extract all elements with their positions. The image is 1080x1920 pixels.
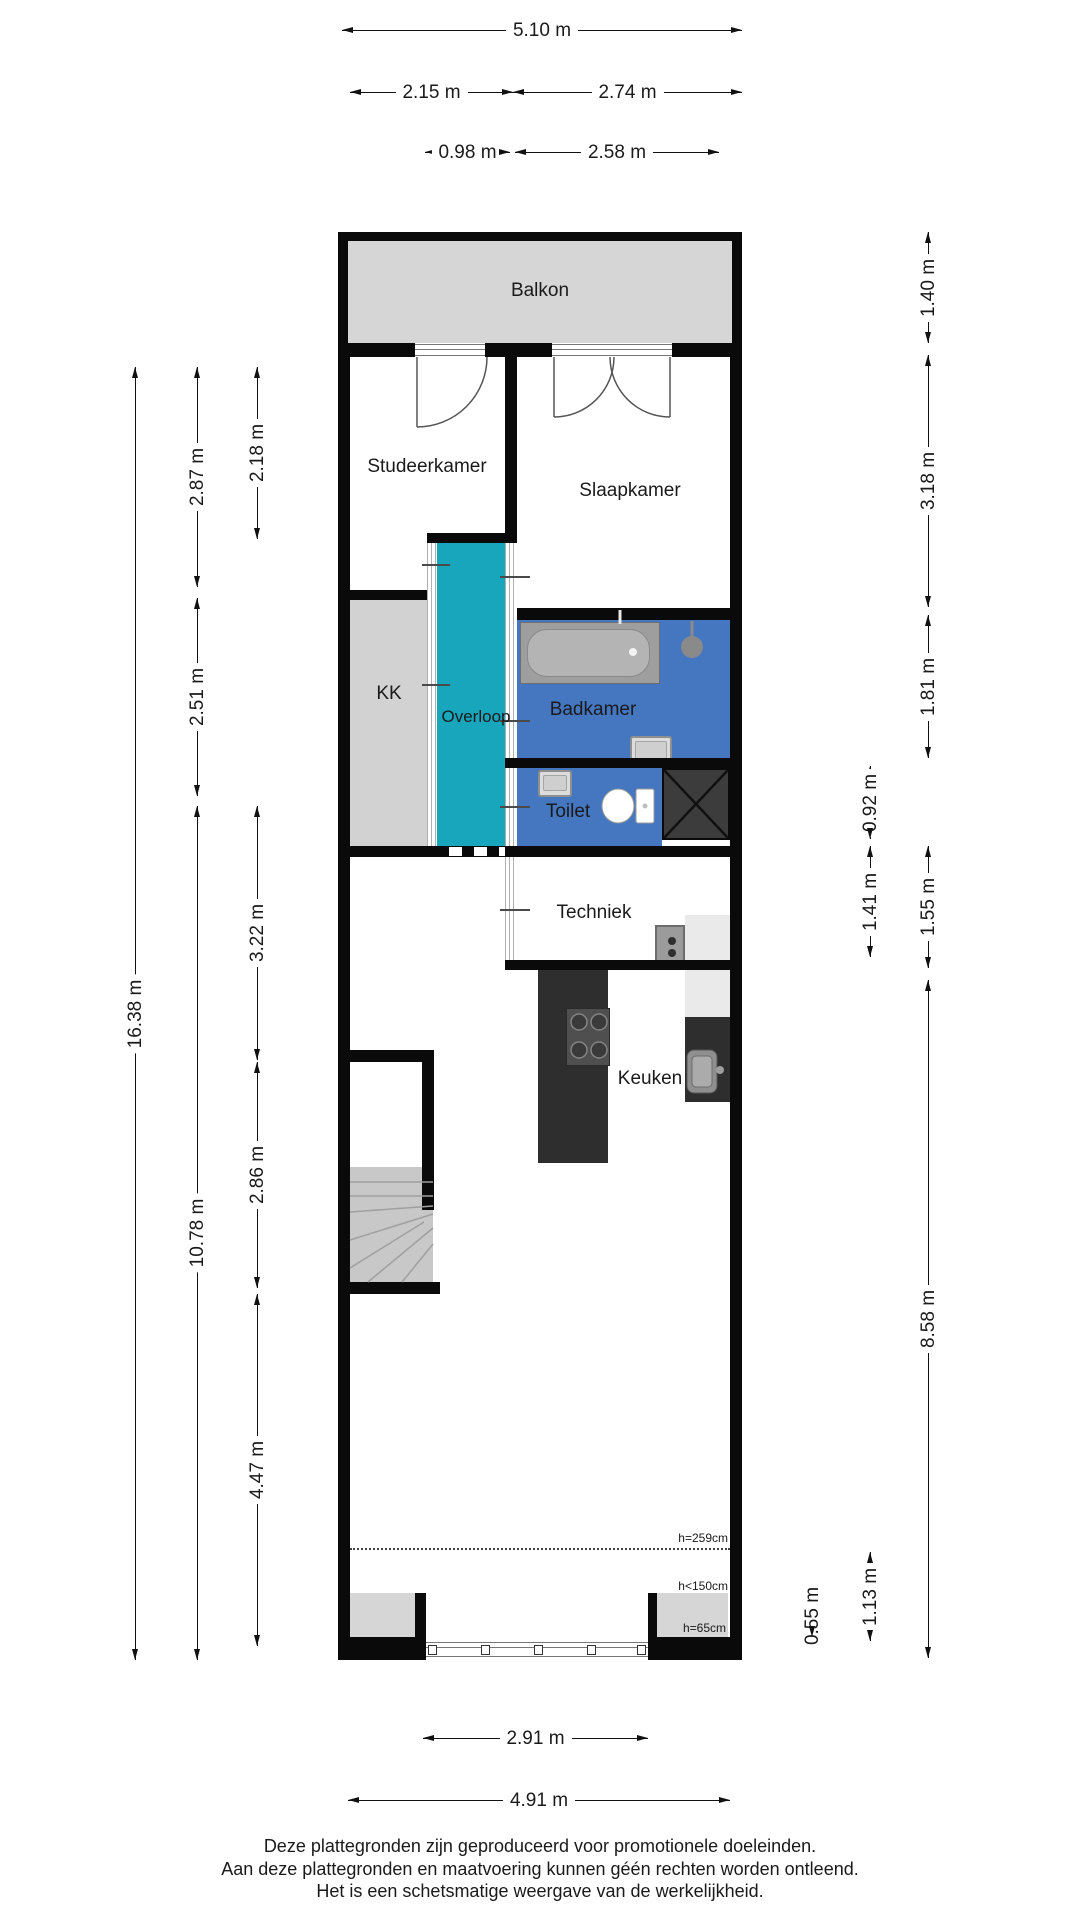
- dim-bottom-window: 2.91 m: [423, 1738, 648, 1739]
- balcony-door-glazing: [552, 344, 672, 356]
- dim-right-bedroom: 3.18 m: [928, 355, 929, 607]
- dim-right-bathroom: 1.81 m: [928, 615, 929, 758]
- dim-left-inner-stairs: 2.86 m: [257, 1062, 258, 1288]
- window-mullion: [534, 1645, 543, 1655]
- hallway-right-partition: [505, 543, 517, 848]
- techniek-bottom-wall: [505, 960, 742, 970]
- stair-bottom-wall: [338, 1282, 440, 1294]
- kk-top-wall: [338, 590, 427, 600]
- room-label-techniek: Techniek: [557, 902, 632, 924]
- hallway-floor: [437, 543, 505, 848]
- height-label-sill: h=65cm: [636, 1621, 726, 1635]
- left-outer-wall: [338, 343, 350, 1660]
- stairs-floor: [350, 1167, 433, 1282]
- room-label-toilet: Toilet: [546, 801, 590, 823]
- door-swing-arcs: [417, 357, 670, 427]
- bathtub-drain: [629, 648, 637, 656]
- bottom-wall-right: [648, 1637, 742, 1660]
- dim-right-toilet: 0.92 m: [870, 766, 871, 839]
- footer-disclaimer-line3: Het is een schetsmatige weergave van de …: [0, 1881, 1080, 1902]
- bathroom-top-wall: [517, 608, 742, 620]
- room-label-studeerkamer: Studeerkamer: [367, 456, 486, 478]
- mid-horizontal-wall: [338, 846, 742, 857]
- room-label-slaapkamer: Slaapkamer: [579, 480, 680, 502]
- dim-top-left: 2.15 m: [350, 92, 513, 93]
- washing-machine: [655, 925, 685, 962]
- dim-left-total: 16.38 m: [135, 367, 136, 1660]
- shower-head: [681, 636, 703, 658]
- bathroom-toilet-wall: [505, 758, 742, 768]
- dim-right-front: 1.13 m: [870, 1552, 871, 1641]
- footer-disclaimer-line2: Aan deze plattegronden en maatvoering ku…: [0, 1859, 1080, 1880]
- dim-left-lower: 10.78 m: [197, 806, 198, 1660]
- dim-left-inner-mid: 3.22 m: [257, 806, 258, 1060]
- window-mullion: [587, 1645, 596, 1655]
- hallway-left-partition: [427, 543, 437, 848]
- room-label-overloop: Overloop: [442, 707, 511, 727]
- facade-stub-left: [415, 1593, 426, 1637]
- dim-left-upper: 2.87 m: [197, 367, 198, 587]
- dim-left-mid: 2.51 m: [197, 598, 198, 796]
- dim-bottom-total: 4.91 m: [348, 1800, 730, 1801]
- balcony-top-wall: [338, 232, 742, 241]
- dim-right-living: 8.58 m: [928, 980, 929, 1658]
- ceiling-height-dotted-line: [350, 1548, 730, 1550]
- balcony-left-wall: [338, 232, 348, 355]
- dim-right-techniek: 1.41 m: [870, 846, 871, 957]
- dim-left-inner-top: 2.18 m: [257, 367, 258, 539]
- room-label-badkamer: Badkamer: [550, 699, 637, 721]
- height-label-ceiling: h=259cm: [638, 1531, 728, 1545]
- dim-right-sill: 0.55 m: [812, 1594, 813, 1637]
- facade-wall-segment: [485, 343, 552, 357]
- kitchen-island: [538, 970, 608, 1163]
- footer-disclaimer-line1: Deze plattegronden zijn geproduceerd voo…: [0, 1836, 1080, 1857]
- shaft: [662, 768, 730, 840]
- stair-opening-dashed: [437, 847, 505, 856]
- hallway-top-wall: [427, 533, 517, 543]
- stair-top-wall: [338, 1050, 434, 1062]
- stair-right-wall: [422, 1062, 434, 1210]
- kk-floor: [350, 600, 427, 846]
- room-label-kk: KK: [376, 683, 401, 705]
- dim-right-hall: 1.55 m: [928, 846, 929, 968]
- balcony-door-glazing: [415, 344, 485, 356]
- dim-top-total: 5.10 m: [342, 30, 742, 31]
- room-label-balkon: Balkon: [511, 280, 569, 302]
- toilet-washbasin: [538, 770, 572, 797]
- bottom-wall-left: [338, 1637, 426, 1660]
- window-mullion: [481, 1645, 490, 1655]
- kitchen-counter: [685, 1017, 730, 1102]
- height-label-low: h<150cm: [638, 1579, 728, 1593]
- window-mullion: [637, 1645, 646, 1655]
- window-sill-left: [350, 1593, 415, 1637]
- dim-right-balcony: 1.40 m: [928, 232, 929, 343]
- window-mullion: [428, 1645, 437, 1655]
- dim-top-inner-right: 2.58 m: [515, 152, 719, 153]
- dim-left-inner-bottom: 4.47 m: [257, 1294, 258, 1646]
- dim-top-right: 2.74 m: [513, 92, 742, 93]
- balcony-right-wall: [732, 232, 742, 355]
- floorplan-canvas: Balkon Studeerkamer Slaapkamer KK Overlo…: [0, 0, 1080, 1920]
- stove: [566, 1008, 610, 1066]
- techniek-partition: [505, 857, 517, 968]
- dim-top-inner-left: 0.98 m: [425, 152, 510, 153]
- room-label-keuken: Keuken: [618, 1068, 682, 1090]
- room-divider-wall: [505, 357, 517, 533]
- right-outer-wall: [730, 343, 742, 1660]
